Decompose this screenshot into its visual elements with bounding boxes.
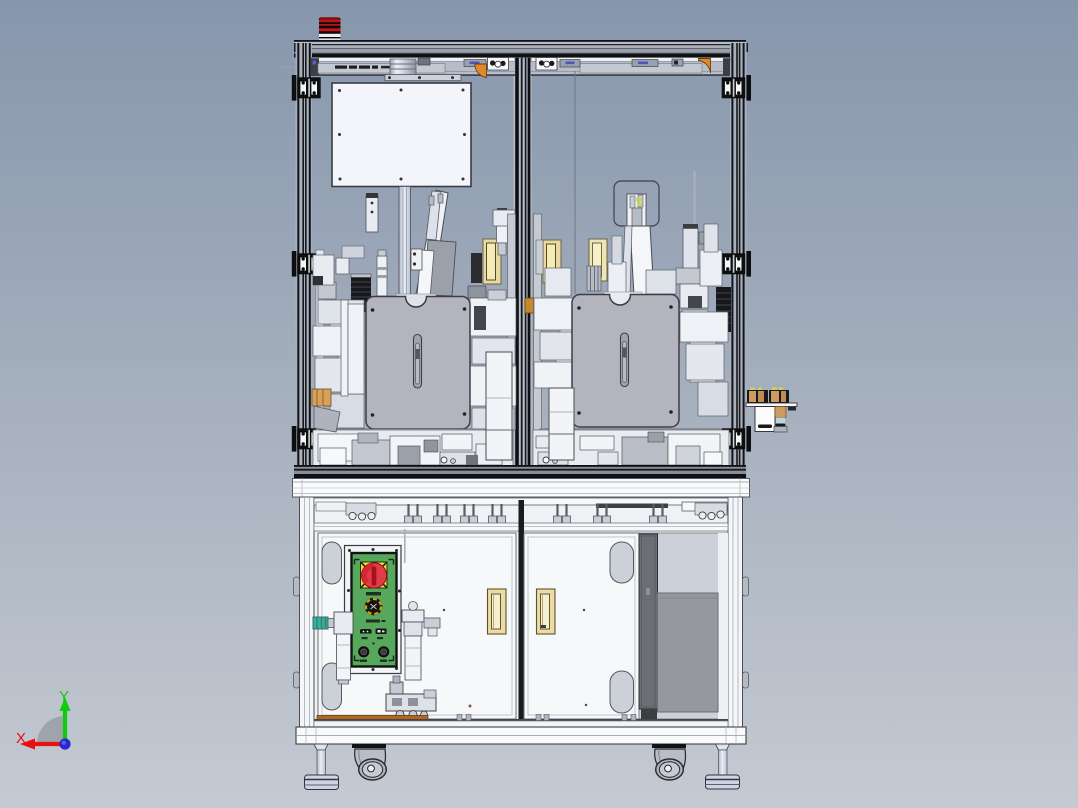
svg-text:Y: Y [59,688,69,705]
svg-text:X: X [16,730,26,747]
